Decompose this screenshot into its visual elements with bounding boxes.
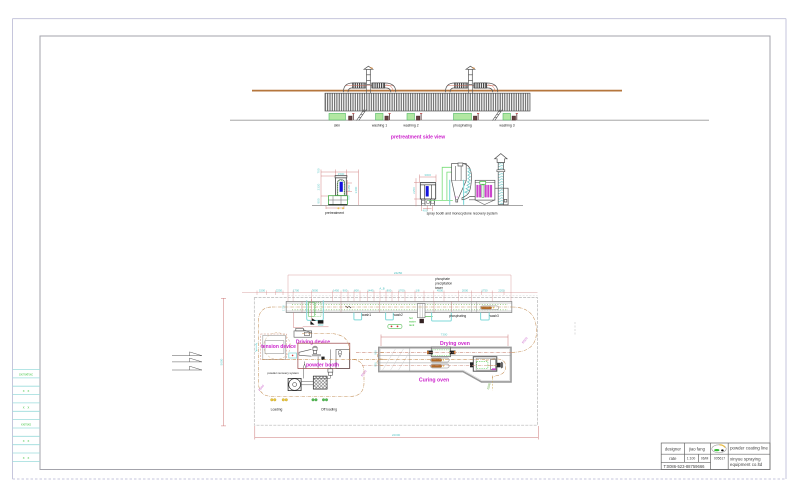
svg-text:designer: designer xyxy=(665,446,682,451)
svg-text:Loading: Loading xyxy=(271,408,283,412)
svg-text:spray booth and monocyclone re: spray booth and monocyclone recovery sys… xyxy=(427,212,498,216)
svg-text:xinyue spraying: xinyue spraying xyxy=(730,457,761,462)
svg-text:Driving device: Driving device xyxy=(296,340,330,346)
svg-text:800: 800 xyxy=(387,289,392,293)
svg-text:wash2: wash2 xyxy=(394,313,403,317)
svg-text:x x: x x xyxy=(23,405,30,409)
svg-text:skin: skin xyxy=(334,124,340,128)
svg-text:900: 900 xyxy=(374,362,378,367)
svg-text:2250: 2250 xyxy=(276,289,283,293)
svg-text:washing 3: washing 3 xyxy=(499,124,514,128)
svg-text:pretreatment: pretreatment xyxy=(325,211,344,215)
svg-text:rate: rate xyxy=(669,456,677,461)
svg-text:powder booth: powder booth xyxy=(306,362,339,368)
svg-text:1:100: 1:100 xyxy=(687,457,696,461)
svg-text:7300: 7300 xyxy=(441,332,448,336)
svg-text:5000: 5000 xyxy=(219,358,223,365)
svg-text:900: 900 xyxy=(343,289,348,293)
svg-text:washing 1: washing 1 xyxy=(372,124,387,128)
svg-text:800: 800 xyxy=(317,198,321,203)
svg-text:precipitation: precipitation xyxy=(435,282,452,286)
svg-text:A_B: A_B xyxy=(379,286,384,290)
svg-text:Curing oven: Curing oven xyxy=(419,377,449,383)
svg-text:Drying oven: Drying oven xyxy=(440,341,470,347)
svg-text:powder recovery system: powder recovery system xyxy=(267,371,299,375)
svg-text:1/8: 1/8 xyxy=(416,289,420,293)
svg-text:1500: 1500 xyxy=(338,172,345,176)
svg-text:jiao fang: jiao fang xyxy=(688,446,706,451)
svg-text:T:0086-523-88759666: T:0086-523-88759666 xyxy=(664,464,706,469)
svg-text:phosphate: phosphate xyxy=(435,277,450,281)
svg-text:1700: 1700 xyxy=(293,289,300,293)
svg-text:washing 2: washing 2 xyxy=(403,124,418,128)
svg-text:1450: 1450 xyxy=(333,289,340,293)
svg-text:x x: x x xyxy=(23,389,30,393)
svg-text:005617: 005617 xyxy=(714,457,725,461)
svg-text:equipment co.ltd: equipment co.ltd xyxy=(730,462,763,467)
svg-text:phosphating: phosphating xyxy=(449,314,467,318)
svg-text:2250: 2250 xyxy=(412,187,416,194)
svg-text:2320: 2320 xyxy=(317,183,321,190)
svg-text:tension device: tension device xyxy=(261,344,296,350)
svg-text:xxmxs: xxmxs xyxy=(21,422,31,426)
svg-text:2200: 2200 xyxy=(498,289,505,293)
svg-text:1445: 1445 xyxy=(367,289,374,293)
svg-text:3000: 3000 xyxy=(424,173,431,177)
svg-text:1850: 1850 xyxy=(318,323,324,327)
svg-text:06/M: 06/M xyxy=(701,457,709,461)
svg-text:24250: 24250 xyxy=(394,271,403,275)
svg-text:phosphating: phosphating xyxy=(453,124,472,128)
svg-text:800: 800 xyxy=(354,289,359,293)
svg-text:tank: tank xyxy=(409,323,415,327)
svg-text:pretreatment side view: pretreatment side view xyxy=(391,134,445,140)
svg-text:700: 700 xyxy=(317,168,321,173)
svg-text:x x: x x xyxy=(23,456,30,460)
svg-text:1700: 1700 xyxy=(398,289,405,293)
svg-text:1250: 1250 xyxy=(347,184,351,191)
svg-text:x x: x x xyxy=(23,439,30,443)
svg-text:2000: 2000 xyxy=(462,289,469,293)
svg-text:1750: 1750 xyxy=(481,289,488,293)
svg-text:22000: 22000 xyxy=(392,433,401,437)
svg-text:1730: 1730 xyxy=(282,305,286,311)
svg-text:wash1: wash1 xyxy=(362,313,371,317)
svg-text:sxmxhxc: sxmxhxc xyxy=(19,372,33,376)
svg-text:Off loading: Off loading xyxy=(321,408,337,412)
svg-text:wash3: wash3 xyxy=(490,314,499,318)
svg-text:powder coating line: powder coating line xyxy=(730,446,768,451)
svg-text:900: 900 xyxy=(374,350,378,355)
svg-text:3400: 3400 xyxy=(354,186,358,193)
svg-text:tower: tower xyxy=(435,286,444,290)
svg-text:1500: 1500 xyxy=(259,289,266,293)
svg-text:3000: 3000 xyxy=(312,289,319,293)
